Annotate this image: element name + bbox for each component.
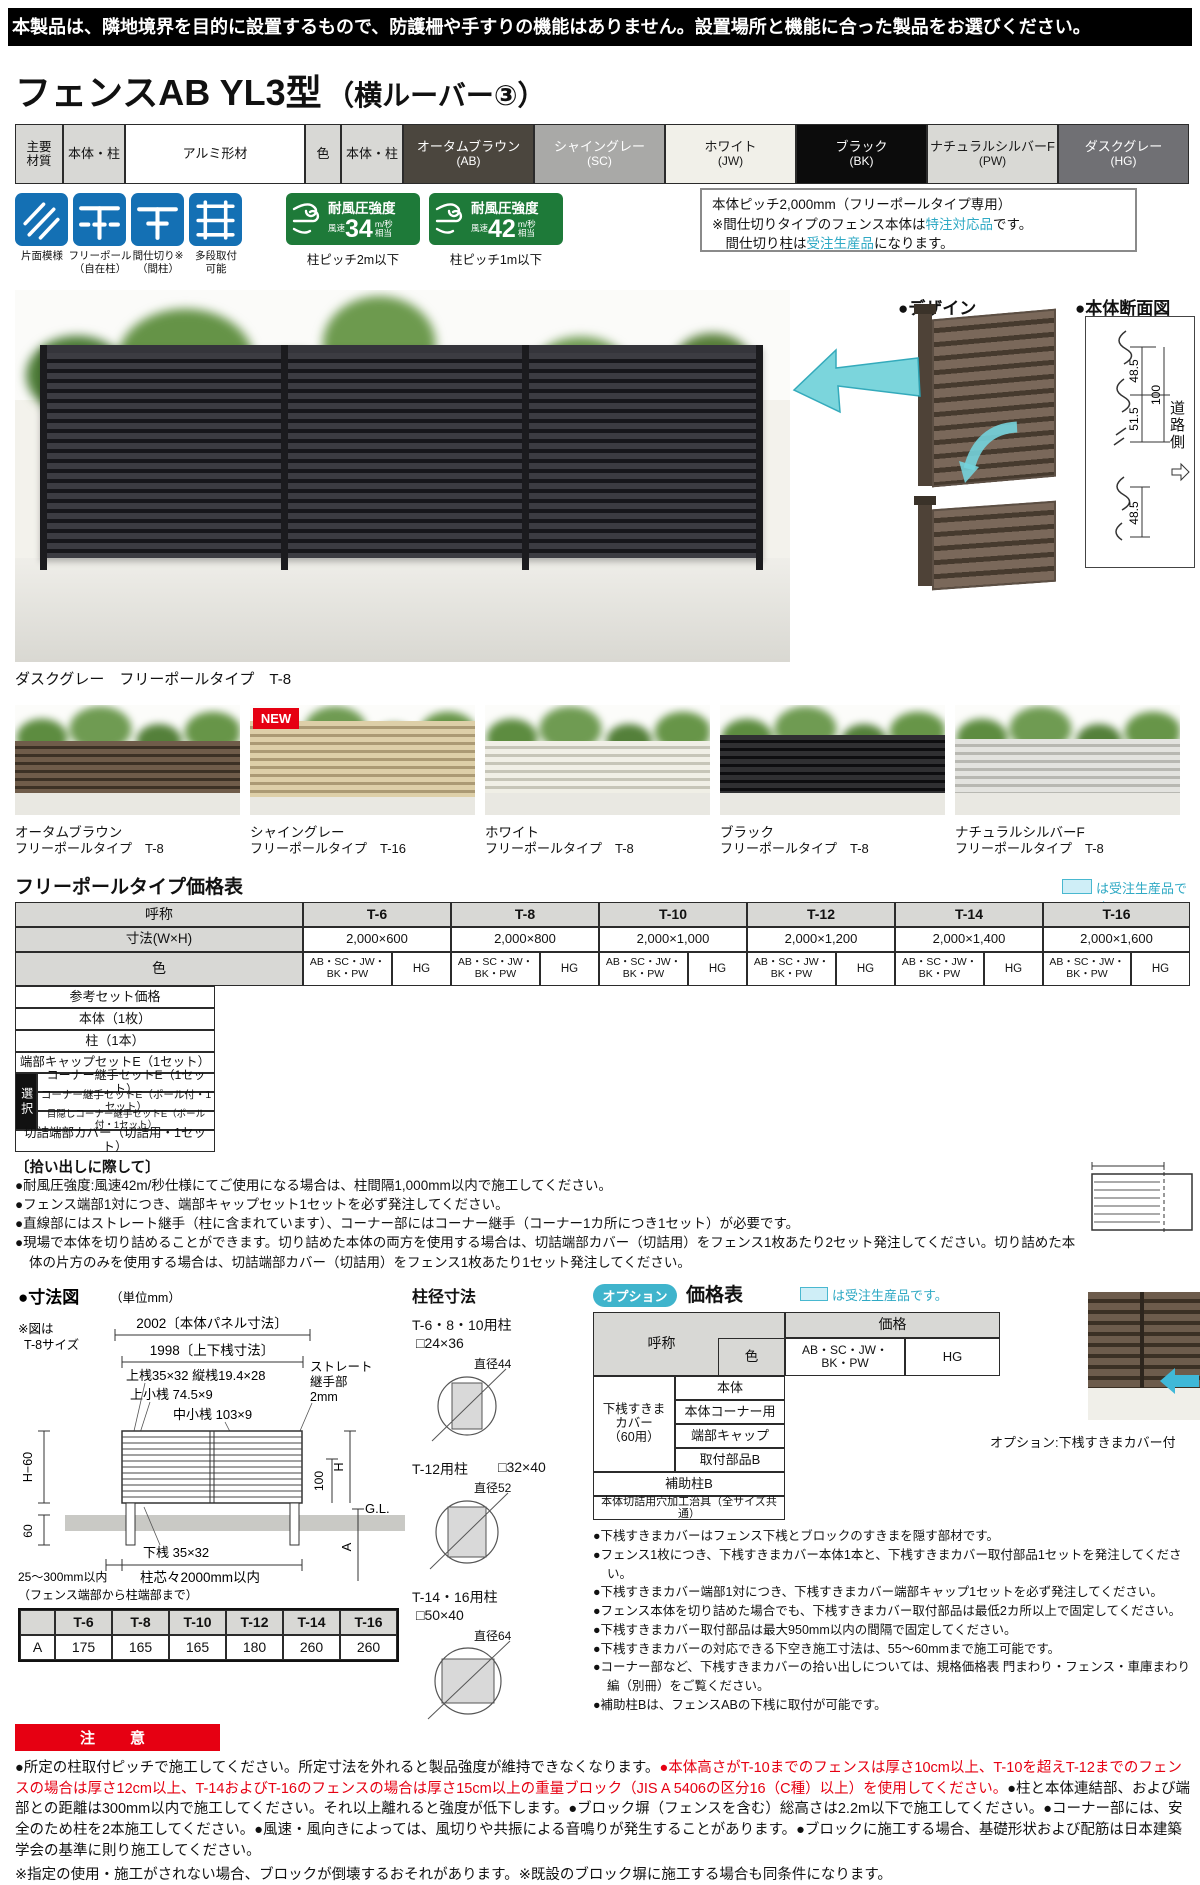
caution-note: ※指定の使用・施工がされない場合、ブロックが倒壊するおそれがあります。※既設のブ… xyxy=(15,1865,1192,1885)
joint-label3: 2mm xyxy=(310,1390,338,1404)
size-header: T-16 xyxy=(1043,902,1190,927)
variant-photo-jw xyxy=(485,705,710,815)
swatch-name: ホワイト xyxy=(704,140,756,155)
option-note: ●下桟すきまカバー端部1対につき、下桟すきまカバー端部キャップ1セットを必ず発注… xyxy=(593,1583,1193,1602)
page-title: フェンスAB YL3型 （横ルーバー③） xyxy=(15,64,546,116)
wind-badge-34: 耐風圧強度 風速 34 m/秒相当 xyxy=(286,193,420,245)
a-table-value: 260 xyxy=(340,1635,397,1660)
wind-icon xyxy=(435,199,467,239)
pickup-note: ●耐風圧強度:風速42m/秒仕様にてご使用になる場合は、柱間隔1,000mm以内… xyxy=(15,1176,1077,1195)
color-group-b: HG xyxy=(984,952,1043,986)
option-note: ●補助柱Bは、フェンスABの下桟に取付が可能です。 xyxy=(593,1696,1193,1715)
bottom-rail-label: 下桟 35×32 xyxy=(143,1545,209,1560)
option-group-label: 下桟すきま カバー （60用） xyxy=(593,1376,675,1472)
louver-fence xyxy=(720,735,945,793)
dim-fig-title: ●寸法図 xyxy=(18,1287,79,1307)
size-header: T-12 xyxy=(747,902,895,927)
fence-post xyxy=(281,345,288,570)
row-cut-end-cover: 切詰端部カバー（切詰用・1セット） xyxy=(15,1130,215,1152)
color-group-a: AB・SC・JW・ BK・PW xyxy=(599,952,688,986)
wind-speed-label: 風速 xyxy=(328,224,345,233)
wind-speed-value: 42 xyxy=(488,217,516,242)
size-header: T-14 xyxy=(895,902,1043,927)
swatch-code: (PW) xyxy=(979,155,1006,169)
dim-value: 2,000×1,400 xyxy=(895,927,1043,952)
wind-badge-42: 耐風圧強度 風速 42 m/秒相当 xyxy=(429,193,563,245)
airflow-curve-arrow-icon xyxy=(945,415,1030,490)
size-header: T-6 xyxy=(303,902,451,927)
product-name: フェンスAB YL3型 xyxy=(15,72,322,113)
color-target: 本体・柱 xyxy=(341,124,403,184)
post-dia-label: T-6・8・10用柱 xyxy=(412,1315,512,1335)
size-header: T-8 xyxy=(451,902,599,927)
post-dia-drawing xyxy=(416,1367,526,1449)
color-group-b: HG xyxy=(392,952,451,986)
color-swatch-sc: シャイングレー (SC) xyxy=(534,124,665,184)
dim-fig-note1: ※図は xyxy=(18,1322,53,1336)
price-table-title: フリーポールタイプ価格表 xyxy=(15,872,243,899)
select-label: 選択 xyxy=(15,1073,37,1130)
option-col-color: 色 xyxy=(718,1338,785,1376)
option-photo xyxy=(1088,1292,1200,1420)
option-row-jig: 本体切詰用穴加工治具（全サイズ共通） xyxy=(593,1496,785,1520)
design-back-post-cap xyxy=(914,496,936,505)
dim-value: 2,000×1,600 xyxy=(1043,927,1190,952)
color-group-b: HG xyxy=(1131,952,1190,986)
ground xyxy=(485,793,710,815)
variant-photo-ab xyxy=(15,705,240,815)
road-side-arrow-icon xyxy=(1172,464,1189,480)
airflow-arrow-icon xyxy=(790,338,925,433)
pitch-line3: 間仕切り柱は受注生産品になります。 xyxy=(712,234,1125,254)
h-label: H xyxy=(332,1462,346,1471)
option-note: ●下桟すきまカバー取付部品は最大950mm以内の間隔で固定してください。 xyxy=(593,1621,1193,1640)
wind-icon xyxy=(292,199,324,239)
made-to-order-swatch xyxy=(1062,879,1092,894)
pickup-note: ●フェンス端部1対につき、端部キャップセット1セットを必ず発注してください。 xyxy=(15,1195,1077,1214)
option-note: ●下桟すきまカバーの対応できる下空き施工寸法は、55～60mmまで施工可能です。 xyxy=(593,1640,1193,1659)
swatch-code: (BK) xyxy=(850,155,874,169)
louver-fence xyxy=(15,741,240,793)
option-row-bracket: 取付部品B xyxy=(675,1448,785,1472)
a-table-value: 165 xyxy=(169,1635,226,1660)
variant-caption-type: フリーポールタイプ T-8 xyxy=(955,838,1104,857)
caution-paragraph: ●所定の柱取付ピッチで施工してください。所定寸法を外れると製品強度が維持できなく… xyxy=(15,1758,1192,1862)
dimension-figure: ●寸法図 （単位mm） ※図は T-8サイズ 2002〔本体パネル寸法〕 199… xyxy=(10,1281,410,1611)
made-to-order-swatch xyxy=(800,1287,828,1301)
dim-header: 寸法(W×H) xyxy=(15,927,303,952)
option-row-aux-post: 補助柱B xyxy=(593,1472,785,1496)
hundred-label: 100 xyxy=(312,1471,326,1491)
color-group-a: AB・SC・JW・ BK・PW xyxy=(747,952,836,986)
dim-value: 2,000×800 xyxy=(451,927,599,952)
fence-post xyxy=(1140,1292,1144,1388)
variant-photo-pw xyxy=(955,705,1180,815)
one-side-pattern-icon xyxy=(15,193,68,246)
wind-equiv: 相当 xyxy=(375,229,393,238)
a-table-row-label: A xyxy=(20,1635,55,1660)
ground xyxy=(15,793,240,815)
color-header: 色 xyxy=(305,124,341,184)
a-dimension-table: T-6 T-8 T-10 T-12 T-14 T-16 A 175 165 16… xyxy=(18,1608,399,1662)
dim-value: 2,000×1,200 xyxy=(747,927,895,952)
post-dia-label: T-12用柱 xyxy=(412,1459,468,1479)
h60-label: H−60 xyxy=(21,1452,35,1482)
main-product-photo xyxy=(15,290,790,662)
dim-value: 2,000×600 xyxy=(303,927,451,952)
wind-badge-title: 耐風圧強度 xyxy=(328,197,396,217)
dim-fig-unit: （単位mm） xyxy=(110,1290,181,1305)
pitch-dim-label: 柱芯々2000mm以内 xyxy=(140,1570,260,1585)
ground xyxy=(720,793,945,815)
option-row-endcap: 端部キャップ xyxy=(675,1424,785,1448)
design-front-post-cap xyxy=(914,304,936,314)
a-table-value: 165 xyxy=(112,1635,169,1660)
color-swatch-pw: ナチュラルシルバーF (PW) xyxy=(927,124,1058,184)
a-table-size: T-6 xyxy=(55,1610,112,1635)
a-table-value: 180 xyxy=(226,1635,283,1660)
swatch-name: オータムブラウン xyxy=(417,140,520,155)
color-group-a: AB・SC・JW・ BK・PW xyxy=(1043,952,1131,986)
post-dia-size: □24×36 xyxy=(416,1335,464,1351)
wind-equiv: 相当 xyxy=(518,229,536,238)
option-table-title: 価格表 xyxy=(686,1280,743,1307)
option-col-price: 価格 xyxy=(785,1312,1000,1338)
option-color-a: AB・SC・JW・ BK・PW xyxy=(785,1338,905,1376)
dim-48-5-bottom: 48.5 xyxy=(1127,501,1141,525)
variant-caption-type: フリーポールタイプ T-16 xyxy=(250,838,406,857)
a-table-size: T-8 xyxy=(112,1610,169,1635)
color-group-a: AB・SC・JW・ BK・PW xyxy=(451,952,540,986)
variant-caption-type: フリーポールタイプ T-8 xyxy=(720,838,869,857)
caution-body: ●所定の柱取付ピッチで施工してください。所定寸法を外れると製品強度が維持できなく… xyxy=(15,1758,1192,1885)
main-photo-caption: ダスクグレー フリーポールタイプ T-8 xyxy=(15,668,291,689)
a-table-size: T-12 xyxy=(226,1610,283,1635)
color-swatch-jw: ホワイト (JW) xyxy=(665,124,796,184)
post-diameter-section: 柱径寸法 T-6・8・10用柱 □24×36 直径44 T-12用柱 □32×4… xyxy=(412,1283,592,1708)
post-dia-title: 柱径寸法 xyxy=(412,1283,592,1307)
partition-icon xyxy=(131,193,184,246)
swatch-name: ダスクグレー xyxy=(1085,140,1162,155)
color-group-b: HG xyxy=(836,952,895,986)
top-rail-label: 上桟35×32 縦桟19.4×28 xyxy=(126,1368,265,1383)
swatch-code: (JW) xyxy=(718,155,743,169)
pitch-line1: 本体ピッチ2,000mm（フリーポールタイプ専用） xyxy=(712,195,1125,215)
option-pointer-arrow-icon xyxy=(1160,1368,1200,1395)
joint-label2: 継手部 xyxy=(310,1374,348,1389)
made-to-order-note: は受注生産品です。 xyxy=(832,1285,948,1304)
edge-dim-label2: （フェンス端部から柱端部まで） xyxy=(18,1587,198,1602)
color-swatch-ab: オータムブラウン (AB) xyxy=(403,124,534,184)
design-back-post xyxy=(918,500,932,586)
wind-speed-value: 34 xyxy=(345,217,373,242)
variant-caption-type: フリーポールタイプ T-8 xyxy=(15,838,164,857)
variant-caption-type: フリーポールタイプ T-8 xyxy=(485,838,634,857)
color-group-a: AB・SC・JW・ BK・PW xyxy=(303,952,392,986)
a-dim-label: A xyxy=(339,1542,354,1551)
design-back-fence xyxy=(932,501,1056,591)
option-note: ●フェンス本体を切り詰めた場合でも、下桟すきまカバー取付部品は最低2カ所以上で固… xyxy=(593,1602,1193,1621)
feature-caption: 多段取付可能 xyxy=(181,250,251,275)
louver-fence xyxy=(40,345,763,558)
swatch-name: ブラック xyxy=(835,140,887,155)
pickup-title: 〔拾い出しに際して〕 xyxy=(15,1156,160,1177)
swatch-code: (SC) xyxy=(587,155,612,169)
dim-48-5-top: 48.5 xyxy=(1127,359,1141,383)
a-table-size: T-16 xyxy=(340,1610,397,1635)
special-order-highlight: 特注対応品 xyxy=(926,217,994,232)
dim-51-5: 51.5 xyxy=(1127,407,1141,431)
rail-dim-label: 1998〔上下桟寸法〕 xyxy=(150,1343,275,1358)
size-header: T-10 xyxy=(599,902,747,927)
row-body: 本体（1枚） xyxy=(15,1008,215,1030)
catalog-page: { "page":{ "top_notice":"本製品は、隣地境界を目的に設置… xyxy=(0,0,1200,1879)
mid-bar-label: 中小桟 103×9 xyxy=(173,1407,252,1422)
caution-banner: 注 意 xyxy=(15,1724,220,1751)
post-dia-size: □32×40 xyxy=(498,1459,546,1475)
option-badge: オプション xyxy=(593,1284,677,1307)
materials-header: 主要 材質 xyxy=(15,124,63,184)
pitch-line2: ※間仕切りタイプのフェンス本体は特注対応品です。 xyxy=(712,215,1125,235)
post-dia-drawing xyxy=(416,1491,526,1577)
option-row-corner: 本体コーナー用 xyxy=(675,1400,785,1424)
swatch-name: シャイングレー xyxy=(554,140,645,155)
dim-100: 100 xyxy=(1149,385,1163,405)
materials-color-bar: 主要 材質 本体・柱 アルミ形材 色 本体・柱 オータムブラウン (AB) シャ… xyxy=(15,124,1190,184)
road-side-label: 道路側 xyxy=(1166,400,1187,451)
col-header-name: 呼称 xyxy=(15,902,303,927)
multi-tier-icon xyxy=(189,193,242,246)
swatch-name: ナチュラルシルバーF xyxy=(930,140,1055,155)
row-post: 柱（1本） xyxy=(15,1030,215,1052)
pitch-info-box: 本体ピッチ2,000mm（フリーポールタイプ専用） ※間仕切りタイプのフェンス本… xyxy=(700,188,1137,252)
free-pole-icon xyxy=(73,193,126,246)
color-group-b: HG xyxy=(540,952,599,986)
ground xyxy=(955,793,1180,815)
row-set-price: 参考セット価格 xyxy=(15,986,215,1008)
a-table-size: T-14 xyxy=(283,1610,340,1635)
option-note: ●下桟すきまカバーはフェンス下桟とブロックのすきまを隠す部材です。 xyxy=(593,1527,1193,1546)
pickup-notes: ●耐風圧強度:風速42m/秒仕様にてご使用になる場合は、柱間隔1,000mm以内… xyxy=(15,1176,1077,1272)
panel-dim-label: 2002〔本体パネル寸法〕 xyxy=(136,1316,288,1331)
wind-speed-label: 風速 xyxy=(471,224,488,233)
pickup-note: ●現場で本体を切り詰めることができます。切り詰めた本体の両方を使用する場合は、切… xyxy=(15,1233,1077,1271)
color-group-a: AB・SC・JW・ BK・PW xyxy=(895,952,984,986)
dim-fig-note2: T-8サイズ xyxy=(24,1337,79,1352)
option-notes: ●下桟すきまカバーはフェンス下桟とブロックのすきまを隠す部材です。 ●フェンス1… xyxy=(593,1527,1193,1715)
gl-label: G.L. xyxy=(365,1501,390,1516)
a-table-value: 260 xyxy=(283,1635,340,1660)
option-row-body: 本体 xyxy=(675,1376,785,1400)
fence-post xyxy=(756,345,763,570)
design-title: ●デザイン xyxy=(898,294,976,319)
option-photo-caption: オプション:下桟すきまカバー付 xyxy=(990,1432,1176,1451)
pickup-note: ●直線部にはストレート継手（柱に含まれています）、コーナー部にはコーナー継手（コ… xyxy=(15,1214,1077,1233)
a-table-size: T-10 xyxy=(169,1610,226,1635)
sixty-label: 60 xyxy=(21,1524,35,1538)
top-notice-bar: 本製品は、隣地境界を目的に設置するもので、防護柵や手すりの機能はありません。設置… xyxy=(8,8,1192,46)
post-dia-size: □50×40 xyxy=(416,1607,464,1623)
post-dia-label: T-14・16用柱 xyxy=(412,1587,498,1607)
variant-photo-bk xyxy=(720,705,945,815)
fence-post xyxy=(522,345,529,570)
option-table: 呼称 価格 色 AB・SC・JW・ BK・PW HG 下桟すきま カバー （60… xyxy=(593,1312,1000,1520)
option-note: ●フェンス1枚につき、下桟すきまカバー本体1本と、下桟すきまカバー取付部品1セッ… xyxy=(593,1546,1193,1584)
color-swatch-bk: ブラック (BK) xyxy=(796,124,927,184)
joint-label1: ストレート xyxy=(310,1360,373,1374)
color-swatch-hg: ダスクグレー (HG) xyxy=(1058,124,1189,184)
edge-dim-label: 25～300mm以内 xyxy=(18,1570,107,1584)
ground xyxy=(15,558,790,662)
a-table-value: 175 xyxy=(55,1635,112,1660)
wind-badge-title: 耐風圧強度 xyxy=(471,197,539,217)
option-color-b: HG xyxy=(905,1338,1000,1376)
new-badge: NEW xyxy=(253,708,299,729)
post-dia-drawing xyxy=(416,1639,526,1729)
louver-fence xyxy=(250,721,475,797)
option-note: ●コーナー部など、下桟すきまカバーの拾い出しについては、規格価格表 門まわり・フ… xyxy=(593,1658,1193,1696)
materials-value: アルミ形材 xyxy=(125,124,305,184)
materials-target: 本体・柱 xyxy=(63,124,125,184)
made-to-order-highlight: 受注生産品 xyxy=(807,236,875,251)
wind-badge-note: 柱ピッチ1m以下 xyxy=(429,249,563,268)
fence-post xyxy=(40,345,47,570)
louver-fence xyxy=(485,741,710,793)
color-row-header: 色 xyxy=(15,952,303,986)
swatch-code: (HG) xyxy=(1111,155,1137,169)
product-subname: （横ルーバー③） xyxy=(326,80,545,111)
wind-badge-note: 柱ピッチ2m以下 xyxy=(286,249,420,268)
louver-fence xyxy=(955,739,1180,793)
panel-cut-sketch xyxy=(1090,1160,1196,1242)
dim-value: 2,000×1,000 xyxy=(599,927,747,952)
swatch-code: (AB) xyxy=(457,155,481,169)
color-group-b: HG xyxy=(688,952,747,986)
